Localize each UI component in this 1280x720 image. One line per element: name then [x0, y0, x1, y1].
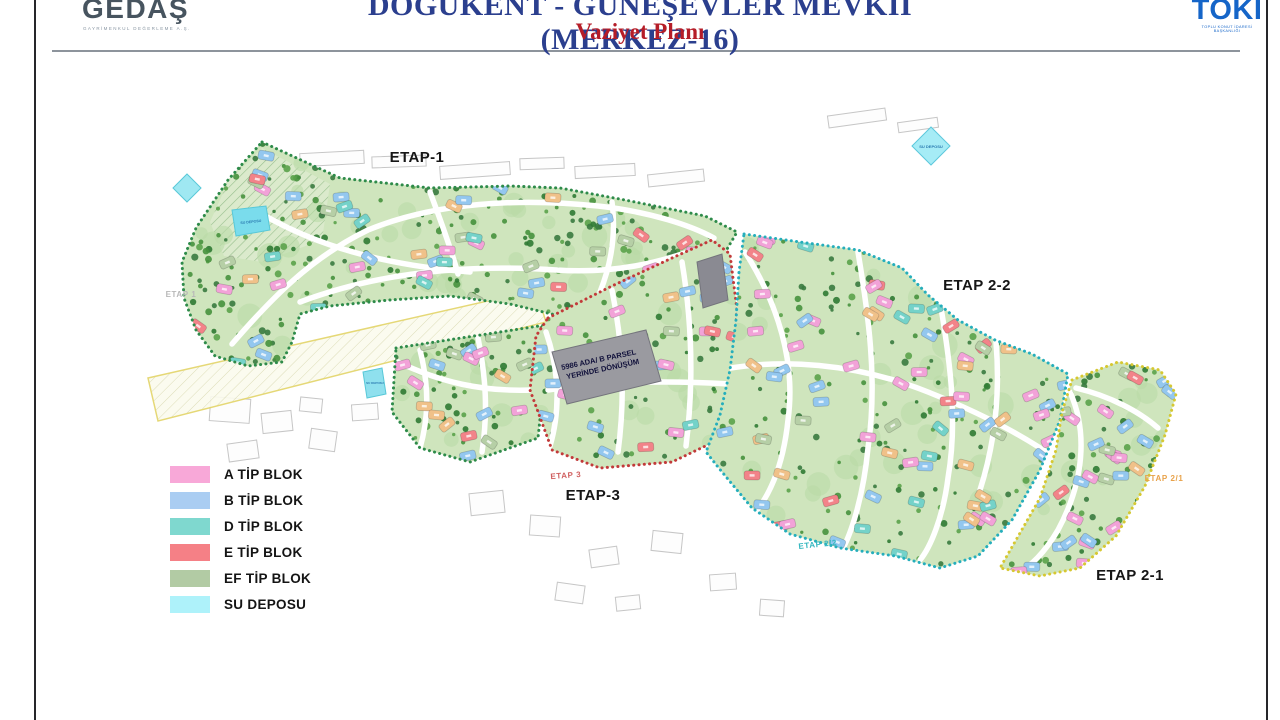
legend-label: E TİP BLOK	[224, 545, 303, 560]
legend-item: SU DEPOSU	[170, 596, 311, 613]
legend-label: B TİP BLOK	[224, 493, 303, 508]
label-etap-3: ETAP-3	[566, 487, 621, 504]
label-etap-1: ETAP-1	[390, 149, 445, 166]
legend-swatch	[170, 544, 210, 561]
region-etap22	[706, 234, 1074, 568]
legend-item: D TİP BLOK	[170, 518, 311, 535]
gray-building	[697, 254, 728, 308]
legend-label: SU DEPOSU	[224, 597, 306, 612]
legend-label: EF TİP BLOK	[224, 571, 311, 586]
legend-item: A TİP BLOK	[170, 466, 311, 483]
legend-label: A TİP BLOK	[224, 467, 303, 482]
faint-label-etap-3: ETAP 3	[550, 470, 581, 481]
faint-label-etap-1: ETAP 1	[166, 290, 197, 299]
water-tank-label-center: SU DEPOSU	[366, 381, 384, 385]
plan-page: GEDAŞ GAYRİMENKUL DEĞERLEME A.Ş. DOĞUKEN…	[0, 0, 1280, 720]
legend-swatch	[170, 596, 210, 613]
legend-swatch	[170, 518, 210, 535]
legend-item: B TİP BLOK	[170, 492, 311, 509]
faint-label-etap-2-2: ETAP 2/2	[798, 538, 837, 551]
legend-item: E TİP BLOK	[170, 544, 311, 561]
legend-swatch	[170, 492, 210, 509]
legend-swatch	[170, 466, 210, 483]
legend-label: D TİP BLOK	[224, 519, 303, 534]
faint-label-etap-2-1: ETAP 2/1	[1145, 474, 1184, 483]
water-tank-label-topright: SU DEPOSU	[919, 144, 943, 149]
label-etap-2-2: ETAP 2-2	[943, 277, 1011, 294]
legend: A TİP BLOKB TİP BLOKD TİP BLOKE TİP BLOK…	[170, 466, 311, 622]
legend-item: EF TİP BLOK	[170, 570, 311, 587]
water-tank-diamond-left	[173, 174, 201, 202]
legend-swatch	[170, 570, 210, 587]
label-etap-2-1: ETAP 2-1	[1096, 567, 1164, 584]
